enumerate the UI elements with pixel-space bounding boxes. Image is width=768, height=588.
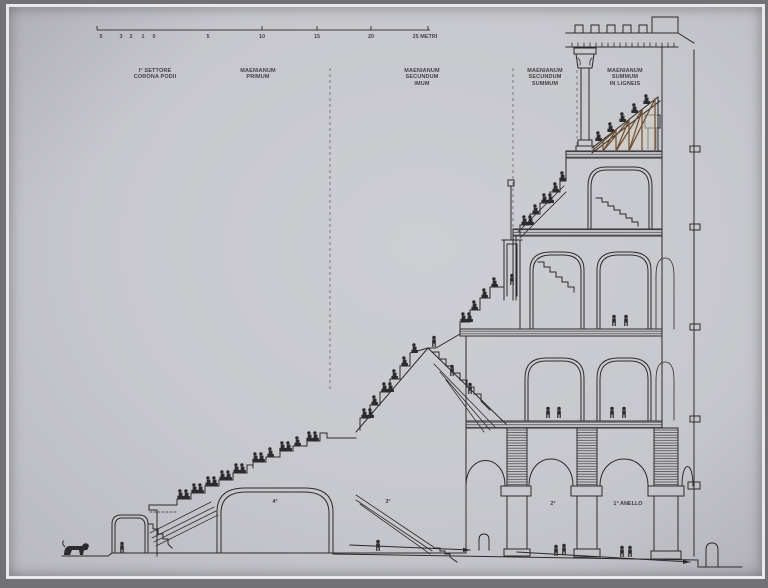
wooden-grandstand [592, 97, 660, 153]
standing-figures [120, 274, 632, 557]
colosseum-section-drawing [0, 0, 768, 588]
lion-figure [63, 541, 89, 556]
seating-bank-c [460, 287, 504, 334]
ground-arcade [466, 428, 693, 559]
vault-under-bank-a [150, 502, 218, 546]
third-level-arches [513, 236, 674, 329]
section-linework [62, 17, 742, 567]
ground-chamber-3 [333, 428, 466, 562]
statue-niche [502, 180, 522, 329]
gable-vault [356, 334, 506, 432]
photographed-museum-panel: { "panel": { "description_colors": { "ba… [0, 0, 768, 588]
diagram-panel: 5 3 2 1 0 5 10 15 20 25 METRI I° SETTORE… [6, 4, 765, 579]
podium-wall [149, 505, 177, 556]
seating-bank-b [253, 433, 356, 468]
seating-bank-d [516, 181, 566, 300]
scale-bar [97, 26, 430, 30]
